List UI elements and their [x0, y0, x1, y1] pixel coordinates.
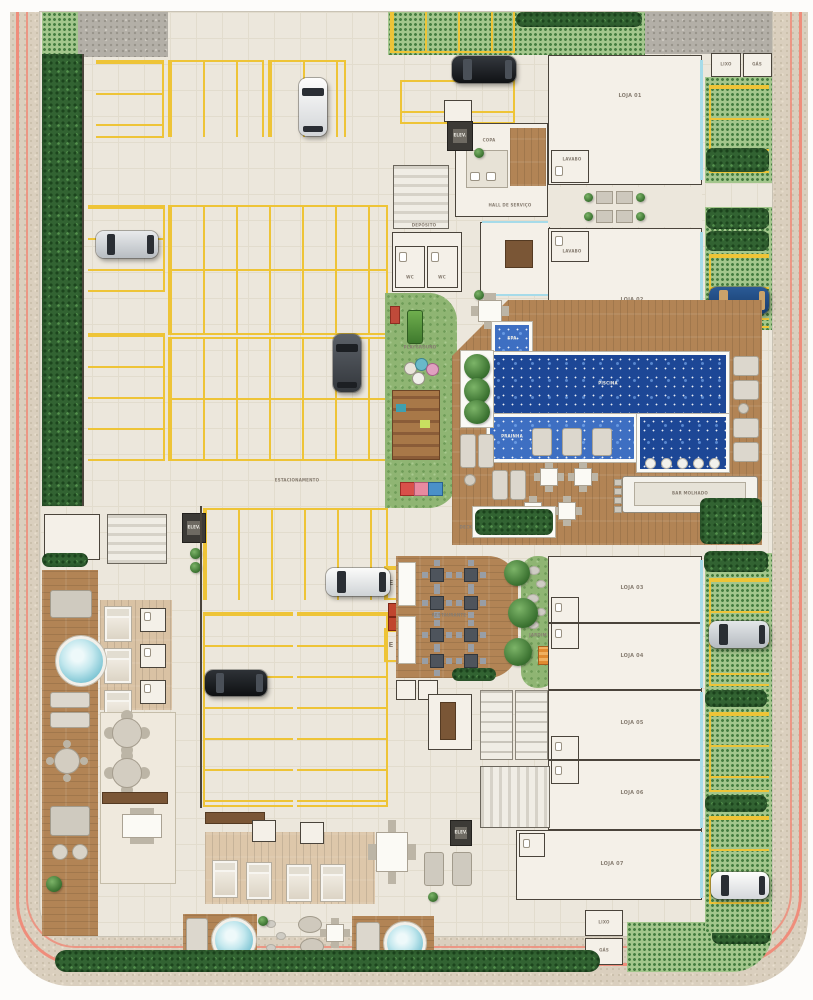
car-gray [333, 334, 361, 392]
play-blocks [400, 482, 415, 496]
resident-elevator [182, 513, 206, 543]
daybed [50, 590, 92, 618]
stall-block [88, 333, 165, 461]
toilet [555, 603, 562, 612]
driveway-slab-right [645, 12, 772, 54]
main-pool [487, 352, 729, 416]
hedge [705, 795, 767, 812]
play-blocks [428, 482, 443, 496]
bed [320, 864, 346, 902]
unit-bath [300, 822, 324, 844]
unit-bath [252, 820, 276, 842]
storefront-glass [700, 832, 703, 898]
toilet [431, 252, 439, 262]
planter-plant [464, 354, 490, 380]
car-silver [709, 621, 769, 648]
deck-hedge [452, 668, 496, 681]
hedge [706, 148, 769, 172]
deck-lounger [492, 470, 508, 500]
service-elevator [450, 820, 472, 846]
storage-racks [515, 690, 548, 760]
driveway-slab-left [78, 12, 168, 57]
potted-plant [474, 148, 484, 158]
play-blocks [414, 482, 429, 496]
walkway-plant [636, 193, 645, 202]
stall-block [203, 612, 293, 807]
toilet [144, 648, 151, 657]
play-spring-toy [412, 372, 425, 385]
planting-corner [42, 12, 78, 54]
dining-table [376, 832, 408, 872]
pouf [72, 844, 88, 860]
bench [596, 191, 613, 204]
storefront-glass [482, 221, 548, 223]
bar-stool [614, 488, 622, 495]
hedge-bar [700, 498, 762, 544]
trash-room [711, 53, 741, 77]
planter-hedge [475, 509, 553, 535]
deck-lounger [733, 356, 759, 376]
restaurant-table [430, 596, 444, 610]
lounger [50, 712, 90, 728]
sink [486, 172, 496, 181]
stall-block [96, 60, 164, 138]
toilet [555, 166, 563, 176]
patio-plant [258, 916, 268, 926]
site-plan: ESTACIONAMENTO E E COPA ELEV. DEPÓSITO W… [0, 0, 813, 1000]
paver-gap [705, 183, 772, 207]
hedge-west-strip [42, 54, 82, 506]
deck-bush [508, 598, 538, 628]
lounger [186, 918, 208, 952]
walkway-plant [584, 193, 593, 202]
deck-side-table [738, 403, 749, 414]
trash-room-south [585, 910, 623, 936]
garage-west-wall [82, 54, 84, 506]
play-climbing-frame [392, 390, 440, 460]
toilet [144, 684, 151, 693]
vestibule [444, 100, 472, 122]
hedge [706, 231, 769, 251]
car-black-suv [452, 56, 516, 83]
deck-lounger [460, 434, 476, 468]
lounger [50, 692, 90, 708]
bench [596, 210, 613, 223]
restaurant-table [464, 568, 478, 582]
hedge [705, 690, 767, 707]
deck-round-table [54, 748, 80, 774]
lounge-sofa [452, 852, 472, 886]
restaurant-wc [396, 680, 416, 700]
car-silver [96, 231, 158, 258]
stepping-stone [276, 932, 286, 940]
storefront-glass [700, 692, 703, 828]
deck-side-table [464, 474, 476, 486]
deck-table [574, 468, 592, 486]
walkway-plant [584, 212, 593, 221]
dining-table [122, 814, 162, 838]
stepping-stone [536, 580, 546, 588]
patio-table [112, 718, 142, 748]
restaurant-table [464, 596, 478, 610]
deck-lounger [510, 470, 526, 500]
stall-block [168, 60, 264, 137]
stairwell [393, 165, 449, 229]
paver-stalls [709, 712, 769, 792]
storage-racks [480, 690, 513, 760]
patio-square-table [326, 924, 344, 942]
apartment-east-wall [200, 506, 202, 808]
planter-plant [464, 400, 490, 424]
stall-block [297, 612, 388, 807]
restaurant-table [430, 568, 444, 582]
oval-table [298, 916, 322, 933]
bed [104, 606, 132, 642]
pool-stool [693, 458, 704, 469]
play-bar [390, 306, 400, 324]
play-spring-toy [426, 363, 439, 376]
pool-stool [709, 458, 720, 469]
copa-counter [466, 150, 508, 188]
spa-pool [492, 322, 532, 355]
car-white [711, 872, 769, 899]
toilet [555, 742, 562, 751]
bar-stool [614, 497, 622, 504]
hedge-south [55, 950, 600, 972]
sink [470, 172, 480, 181]
play-frame-seat [396, 404, 406, 412]
kitchen-counter [102, 792, 168, 804]
bed [212, 860, 238, 898]
bench [616, 191, 633, 204]
storefront-glass [700, 60, 703, 180]
in-pool-lounger [562, 428, 582, 456]
bench [616, 210, 633, 223]
resident-stairwell [107, 514, 167, 564]
potted-plant [474, 290, 484, 300]
deck-table [558, 502, 576, 520]
deck-bush [504, 560, 530, 586]
elevator [447, 121, 473, 151]
bed [286, 864, 312, 902]
daybed [50, 806, 90, 836]
service-counter [398, 562, 416, 606]
deck-lounger [733, 418, 759, 438]
walkway-plant [636, 212, 645, 221]
restaurant-table [464, 654, 478, 668]
toilet [555, 629, 562, 638]
deck-plant [46, 876, 62, 892]
hedge-top [516, 12, 642, 27]
storefront-glass [482, 294, 548, 296]
toilet [399, 252, 407, 262]
deck-table [540, 468, 558, 486]
jacuzzi [56, 636, 106, 686]
deck-table [478, 300, 502, 322]
play-slide [407, 310, 423, 344]
deck-lounger [733, 442, 759, 462]
service-stairs [480, 766, 550, 828]
play-frame-seat [420, 420, 430, 428]
in-pool-lounger [592, 428, 612, 456]
deck-bush [504, 638, 532, 666]
restaurant-table [464, 628, 478, 642]
copa-cabinet [510, 128, 546, 186]
stall-block [168, 205, 388, 335]
bar-stool [614, 479, 622, 486]
paver-stalls-top [390, 12, 515, 53]
deck-lounger [733, 380, 759, 400]
pool-stool [677, 458, 688, 469]
pool-stool [645, 458, 656, 469]
toilet [555, 766, 562, 775]
toilet [144, 612, 151, 621]
hedge [706, 208, 769, 229]
restaurant-table [430, 654, 444, 668]
hedge [704, 551, 768, 572]
toilet [523, 839, 530, 848]
lounge-plant [428, 892, 438, 902]
storefront-glass [700, 560, 703, 688]
bar-stool [614, 506, 622, 513]
car-black [205, 670, 267, 696]
gas-room [743, 53, 772, 77]
pool-stool [661, 458, 672, 469]
car-white-suv [326, 568, 390, 596]
bed [246, 862, 272, 900]
service-counter [398, 616, 416, 664]
pouf [52, 844, 68, 860]
in-pool-lounger [532, 428, 552, 456]
bed [104, 648, 132, 684]
car-white [299, 78, 327, 136]
toilet [555, 236, 563, 246]
hedge-planter [42, 553, 88, 567]
reception-desk [505, 240, 533, 268]
restaurant-table [430, 628, 444, 642]
deck-lounger [478, 434, 494, 468]
patio-table [112, 758, 142, 788]
lounge-sofa [424, 852, 444, 886]
meeting-table [440, 702, 456, 740]
